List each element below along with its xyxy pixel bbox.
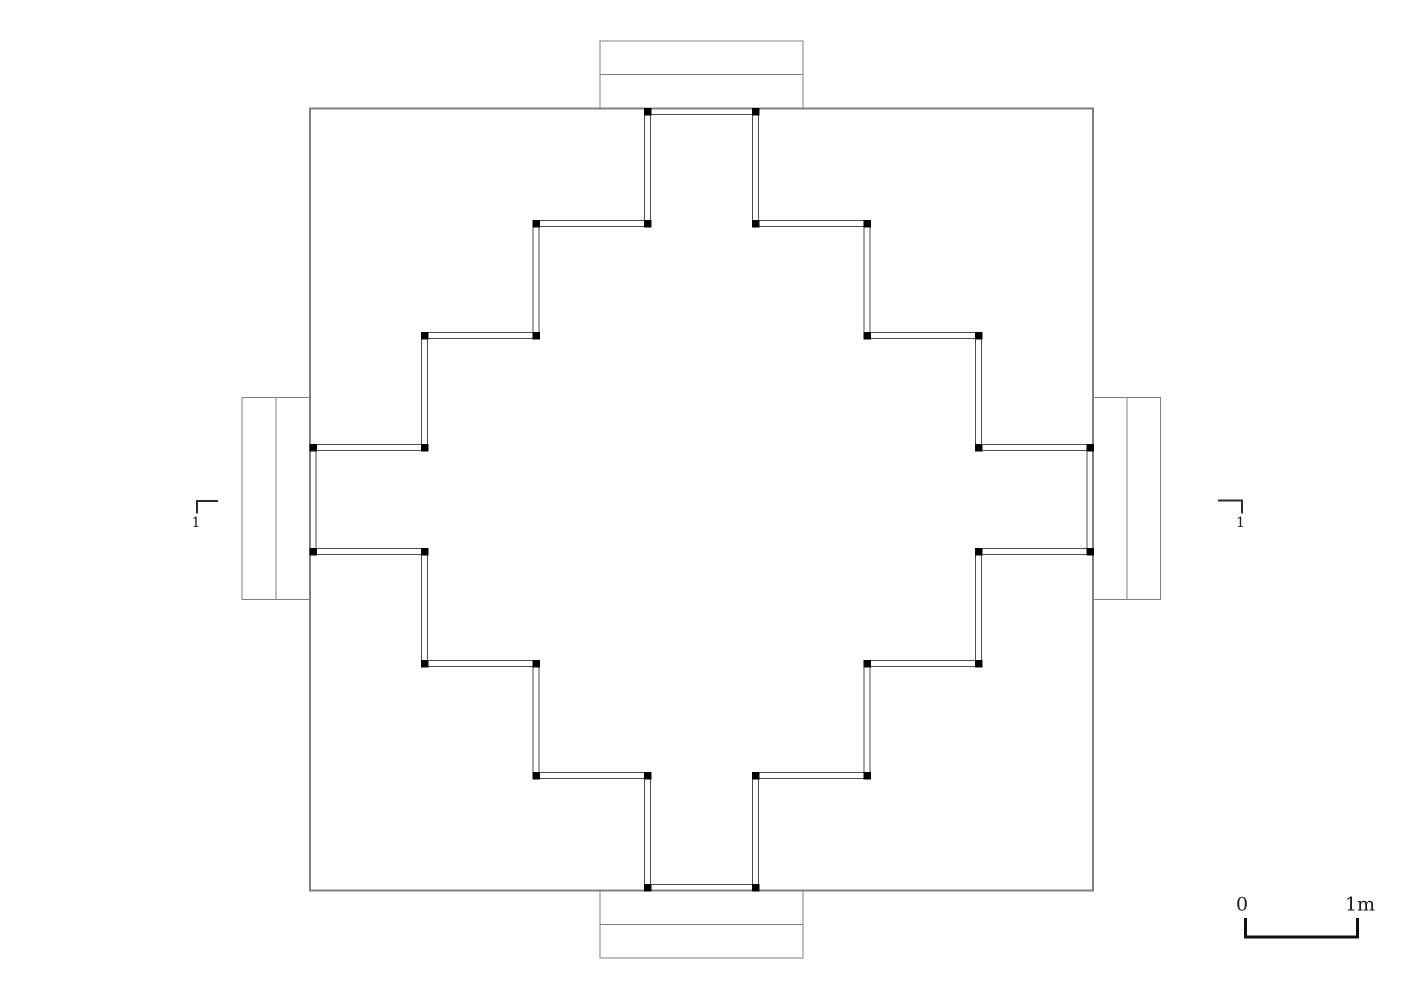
column-marker: [863, 332, 871, 340]
section-marker-left-label: 1: [192, 516, 201, 530]
section-marker-right-label: 1: [1236, 516, 1245, 530]
column-marker: [532, 660, 540, 668]
column-marker: [752, 884, 760, 892]
column-marker: [532, 772, 540, 780]
column-marker: [421, 548, 429, 556]
column-marker: [863, 660, 871, 668]
column-marker: [752, 108, 760, 116]
floor-plan-canvas: 1 1 0 1m: [0, 0, 1413, 1000]
column-marker: [1086, 444, 1094, 452]
column-marker: [309, 548, 317, 556]
column-marker: [644, 108, 652, 116]
column-marker: [863, 220, 871, 228]
chamber-wall-outer-top-right: [759, 109, 1094, 445]
column-marker: [1086, 548, 1094, 556]
chamber-wall-outer-top-left: [310, 109, 645, 445]
platform-outline: [310, 109, 1093, 891]
column-marker: [644, 884, 652, 892]
column-marker: [421, 660, 429, 668]
column-marker: [975, 660, 983, 668]
column-marker: [309, 444, 317, 452]
chamber-wall-outer-bottom-left: [310, 555, 645, 891]
section-marker-right-line: [1218, 501, 1242, 514]
column-marker: [863, 772, 871, 780]
scale-bar-line: [1246, 918, 1358, 937]
scale-bar-zero-label: 0: [1236, 896, 1248, 915]
column-marker: [644, 772, 652, 780]
column-marker: [421, 332, 429, 340]
column-marker: [421, 444, 429, 452]
floor-plan-drawing: [0, 0, 1413, 1000]
column-marker: [752, 220, 760, 228]
column-marker: [532, 220, 540, 228]
column-marker: [752, 772, 760, 780]
scale-bar-one-meter-label: 1m: [1345, 896, 1375, 915]
column-marker: [975, 444, 983, 452]
section-marker-left-line: [197, 501, 218, 514]
chamber-wall-inner-outline: [316, 115, 1087, 885]
chamber-wall-outer-bottom-right: [759, 555, 1094, 891]
column-marker: [532, 332, 540, 340]
column-marker: [975, 548, 983, 556]
column-marker: [644, 220, 652, 228]
column-marker: [975, 332, 983, 340]
